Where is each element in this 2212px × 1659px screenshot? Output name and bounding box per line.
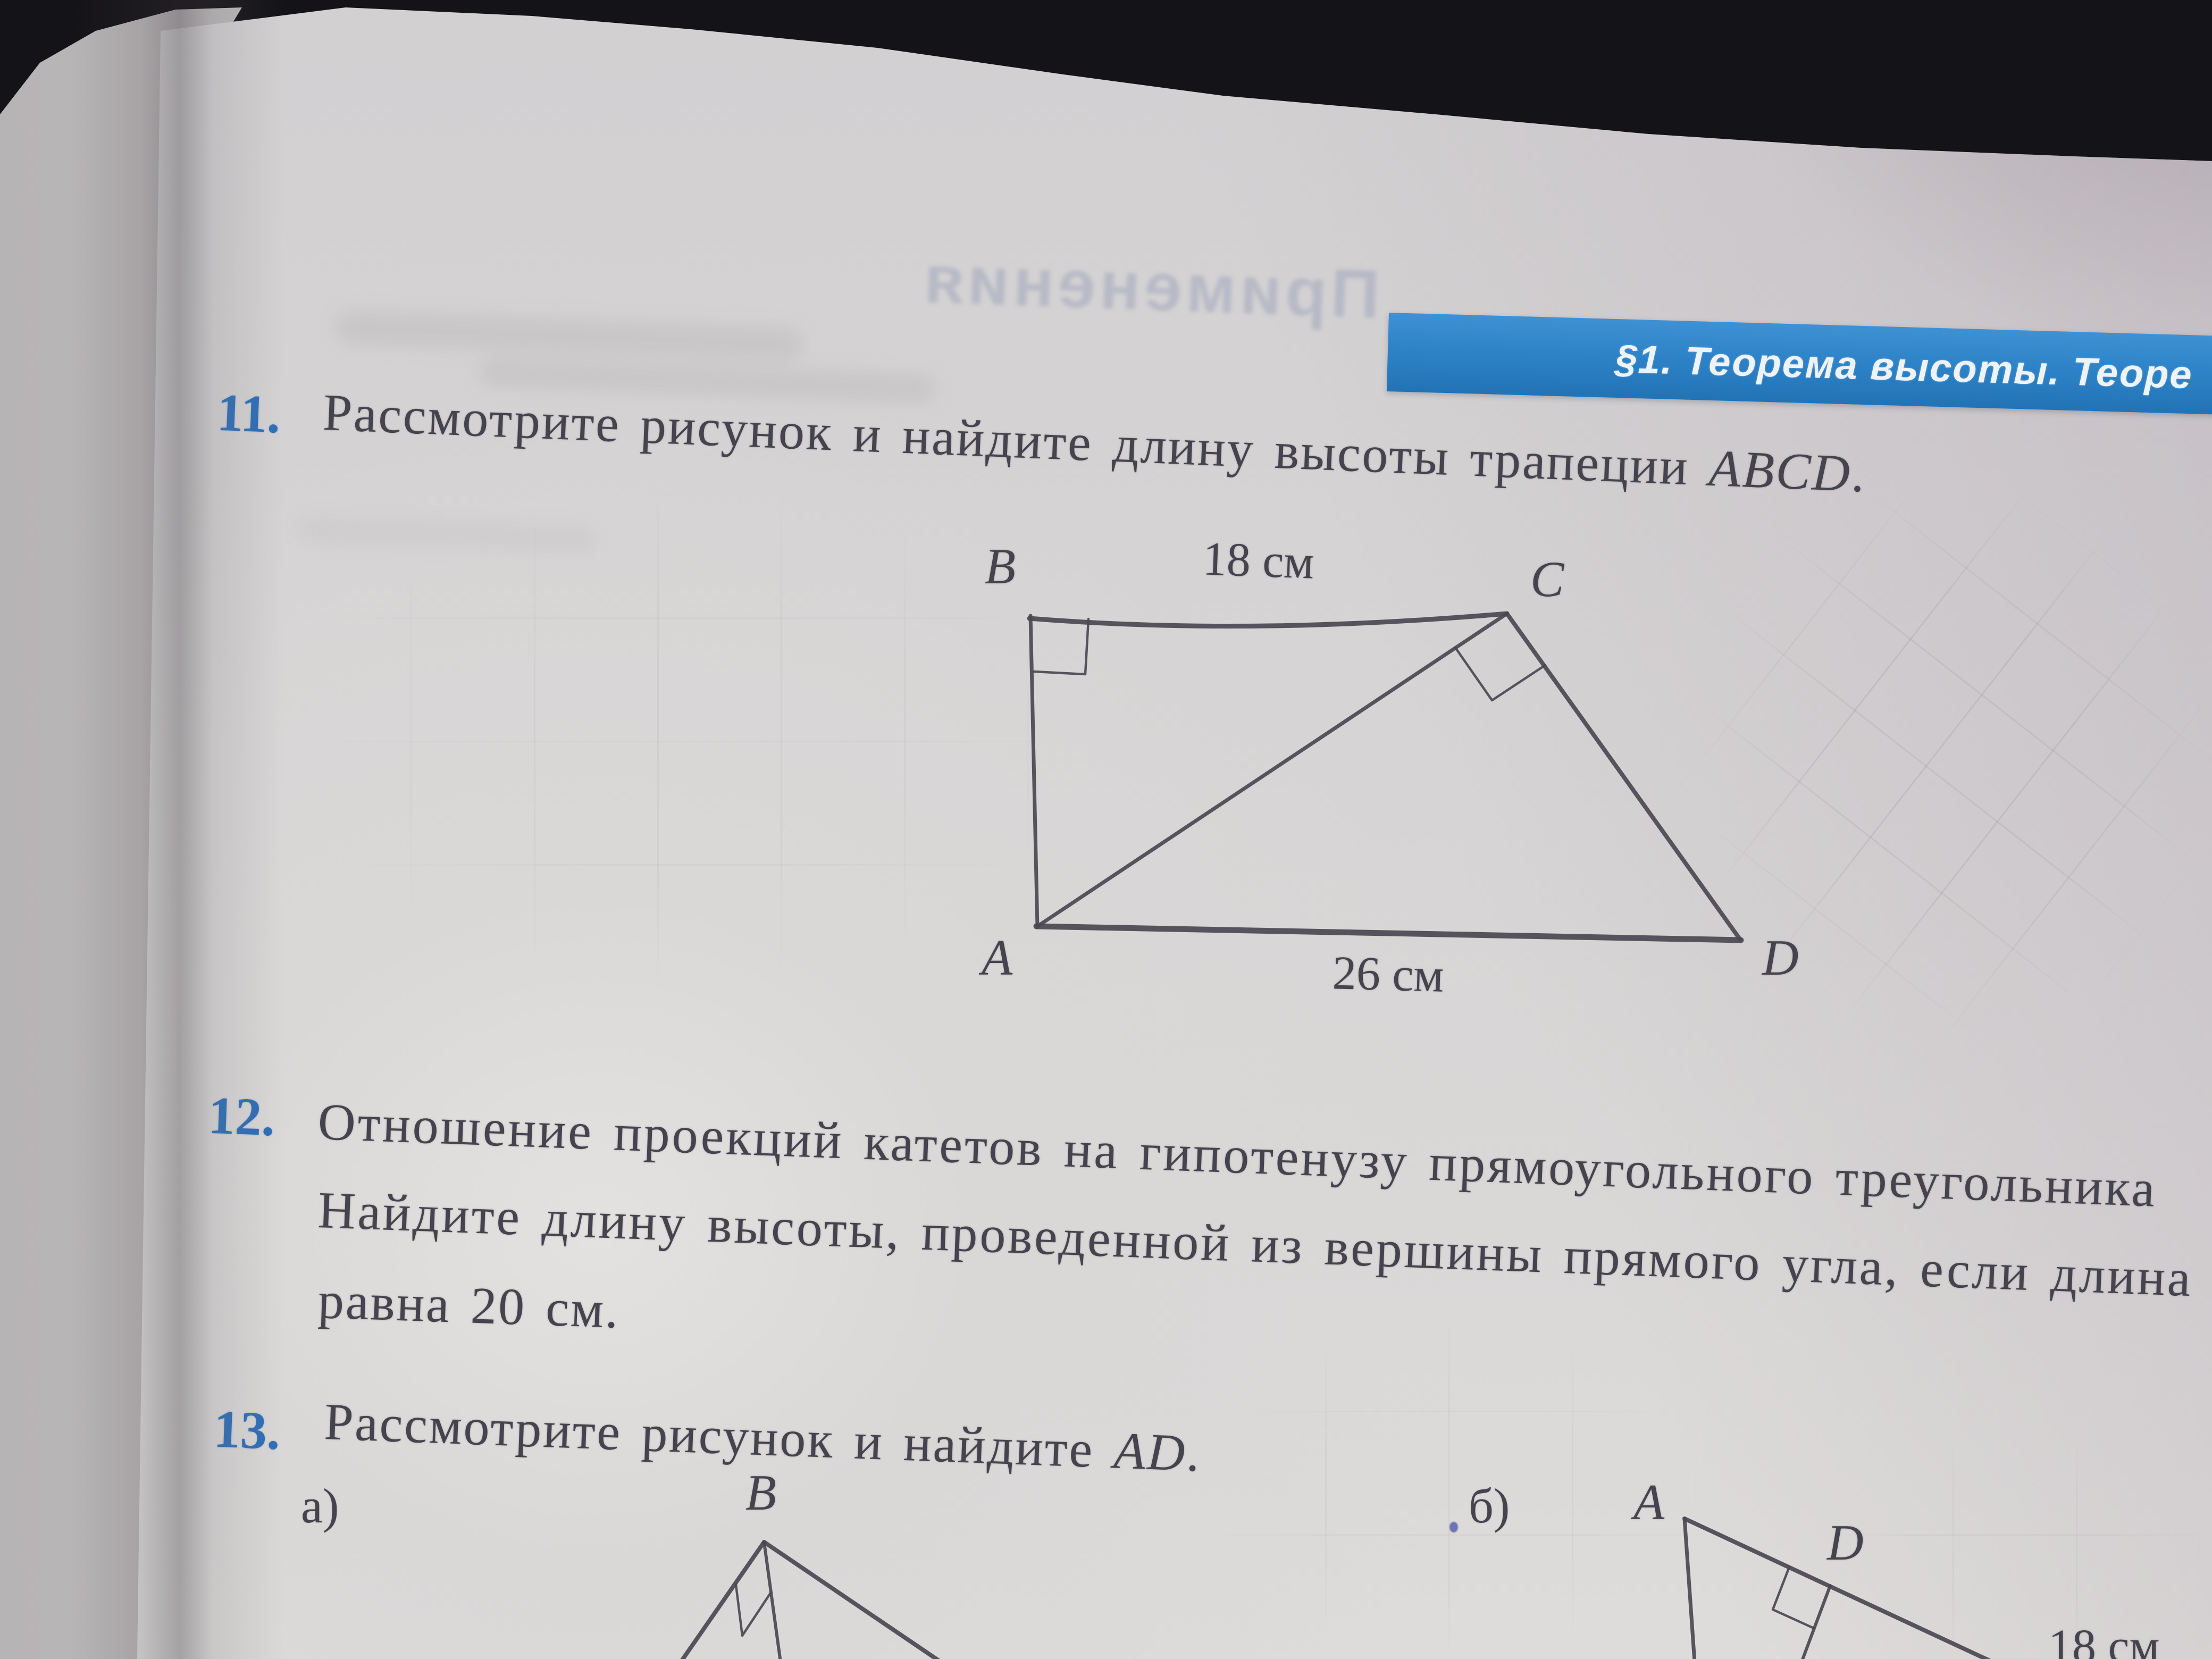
problem-13-number: 13. bbox=[213, 1403, 281, 1458]
right-angle-mark-b bbox=[1034, 619, 1088, 674]
photo-canvas: Применения §1. Теорема высоты. Теоре 11.… bbox=[0, 0, 2212, 1659]
figure-a-right-angle-mark bbox=[736, 1585, 770, 1636]
figure-b-left-side bbox=[1685, 1519, 1695, 1659]
trapezoid-bottom-length-label: 26 см bbox=[1332, 949, 1445, 1000]
trapezoid-label-a: A bbox=[982, 933, 1012, 983]
problem-13-period: . bbox=[1185, 1425, 1202, 1482]
trapezoid-side-bc bbox=[1029, 614, 1507, 626]
trapezoid-side-cd bbox=[1507, 614, 1740, 939]
subfigure-b-length-label: 18 см bbox=[2048, 1623, 2159, 1659]
problem-12-line-3: равна 20 см. bbox=[317, 1272, 621, 1340]
subfigure-b-vertex-a-label: A bbox=[1633, 1477, 1664, 1528]
problem-13-math: AD bbox=[1113, 1422, 1188, 1482]
trapezoid-label-b: B bbox=[985, 541, 1016, 592]
subfigure-b-vertex-d-label: D bbox=[1827, 1518, 1864, 1568]
book-page: Применения §1. Теорема высоты. Теоре 11.… bbox=[0, 0, 2212, 1659]
figure-a-left-side bbox=[681, 1542, 764, 1659]
trapezoid-side-ad bbox=[1036, 926, 1741, 940]
trapezoid-label-d: D bbox=[1762, 933, 1799, 983]
trapezoid-diagonal-ac bbox=[1037, 614, 1507, 926]
trapezoid-top-length-label: 18 см bbox=[1202, 535, 1314, 586]
figure-b-height bbox=[1802, 1586, 1830, 1659]
trapezoid-side-ab bbox=[1030, 616, 1037, 927]
subfigure-a-vertex-b-label: B bbox=[745, 1468, 776, 1518]
problem-12-number: 12. bbox=[207, 1089, 275, 1144]
subfigure-a-label: а) bbox=[301, 1481, 339, 1530]
ink-dot bbox=[1449, 1522, 1458, 1532]
right-angle-mark-c bbox=[1455, 648, 1545, 700]
figure-a-right-side bbox=[764, 1542, 941, 1659]
subfigure-b-label: б) bbox=[1469, 1481, 1510, 1530]
trapezoid-label-c: C bbox=[1530, 554, 1564, 605]
